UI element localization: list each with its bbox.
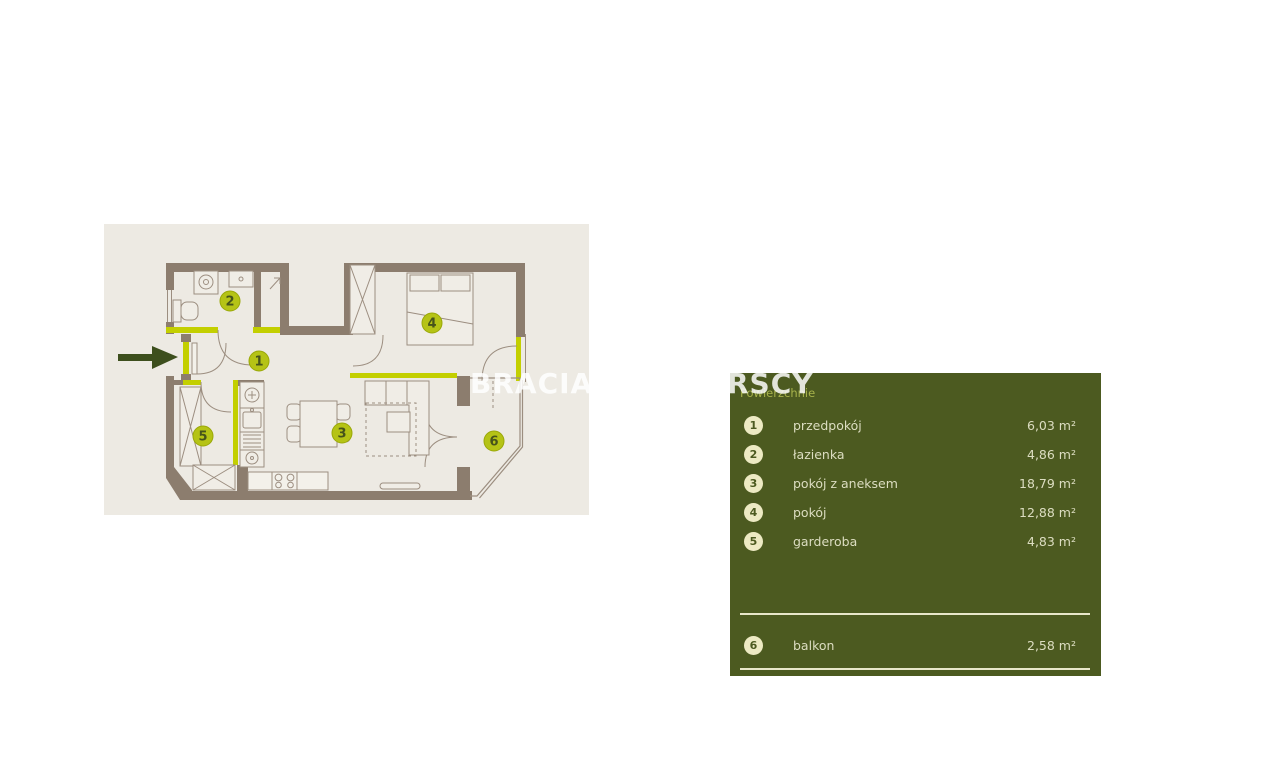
balcony-door-arc-2: [425, 437, 457, 467]
room-number-badge: 1: [744, 416, 763, 435]
bedroom-wardrobe-icon: [350, 265, 375, 334]
marker-2: 2: [220, 291, 240, 311]
svg-text:3: 3: [337, 427, 346, 442]
svg-text:1: 1: [254, 355, 263, 370]
closet-icon: [180, 387, 201, 466]
tv-bench-icon: [380, 483, 420, 489]
room-number-badge: 6: [744, 636, 763, 655]
room-area: 12,88 m²: [1019, 505, 1076, 520]
svg-text:4: 4: [427, 317, 436, 332]
vent-arrow-icon: [270, 278, 280, 289]
room-number-badge: 4: [744, 503, 763, 522]
legend-row: 2 łazienka 4,86 m²: [740, 440, 1076, 469]
legend-row: 5 garderoba 4,83 m²: [740, 527, 1076, 556]
marker-3: 3: [332, 423, 352, 443]
marker-1: 1: [249, 351, 269, 371]
entrance-arrow-icon: [118, 346, 178, 369]
room-area: 2,58 m²: [1027, 638, 1076, 653]
legend-row: 1 przedpokój 6,03 m²: [740, 411, 1076, 440]
balcony-door-arc-1: [425, 407, 457, 437]
washing-machine-icon: [194, 271, 218, 294]
svg-text:6: 6: [489, 435, 498, 450]
bottom-closet-icon: [193, 465, 235, 490]
svg-text:2: 2: [225, 295, 234, 310]
oven-icon: [240, 450, 264, 467]
coffee-table-icon: [387, 412, 410, 432]
room-label: przedpokój: [793, 418, 1027, 433]
stove-icon: [272, 472, 297, 490]
bed-icon: [407, 273, 473, 345]
room-label: pokój z aneksem: [793, 476, 1019, 491]
legend-row: 6 balkon 2,58 m²: [740, 631, 1076, 660]
dishwasher-icon: [240, 432, 264, 450]
fridge-icon: [240, 382, 264, 408]
entrance-door-leaf: [192, 343, 197, 374]
room-area: 4,86 m²: [1027, 447, 1076, 462]
room-number-badge: 3: [744, 474, 763, 493]
kitchen-sink-icon: [240, 408, 264, 432]
bathroom-sink-icon: [229, 271, 253, 287]
legend-panel: Powierzchnie 1 przedpokój 6,03 m² 2 łazi…: [730, 373, 1101, 676]
room-area: 6,03 m²: [1027, 418, 1076, 433]
svg-text:5: 5: [198, 430, 207, 445]
marker-6: 6: [484, 431, 504, 451]
bedroom-door-arc: [353, 335, 383, 366]
room-area: 4,83 m²: [1027, 534, 1076, 549]
marker-5: 5: [193, 426, 213, 446]
watermark-text-left: BRACIA/: [470, 370, 604, 398]
toilet-icon: [173, 300, 198, 322]
room-label: garderoba: [793, 534, 1027, 549]
legend-divider: [740, 613, 1090, 615]
legend-row: 3 pokój z aneksem 18,79 m²: [740, 469, 1076, 498]
room-number-badge: 5: [744, 532, 763, 551]
wardrobe-door-arc: [201, 382, 231, 412]
room-label: pokój: [793, 505, 1019, 520]
room-label: łazienka: [793, 447, 1027, 462]
room-number-badge: 2: [744, 445, 763, 464]
watermark-text-right: RSCY: [727, 370, 814, 398]
room-area: 18,79 m²: [1019, 476, 1076, 491]
legend-row: 4 pokój 12,88 m²: [740, 498, 1076, 527]
entrance-door-arc: [197, 343, 226, 374]
marker-4: 4: [422, 313, 442, 333]
room-label: balkon: [793, 638, 1027, 653]
legend-divider: [740, 668, 1090, 670]
